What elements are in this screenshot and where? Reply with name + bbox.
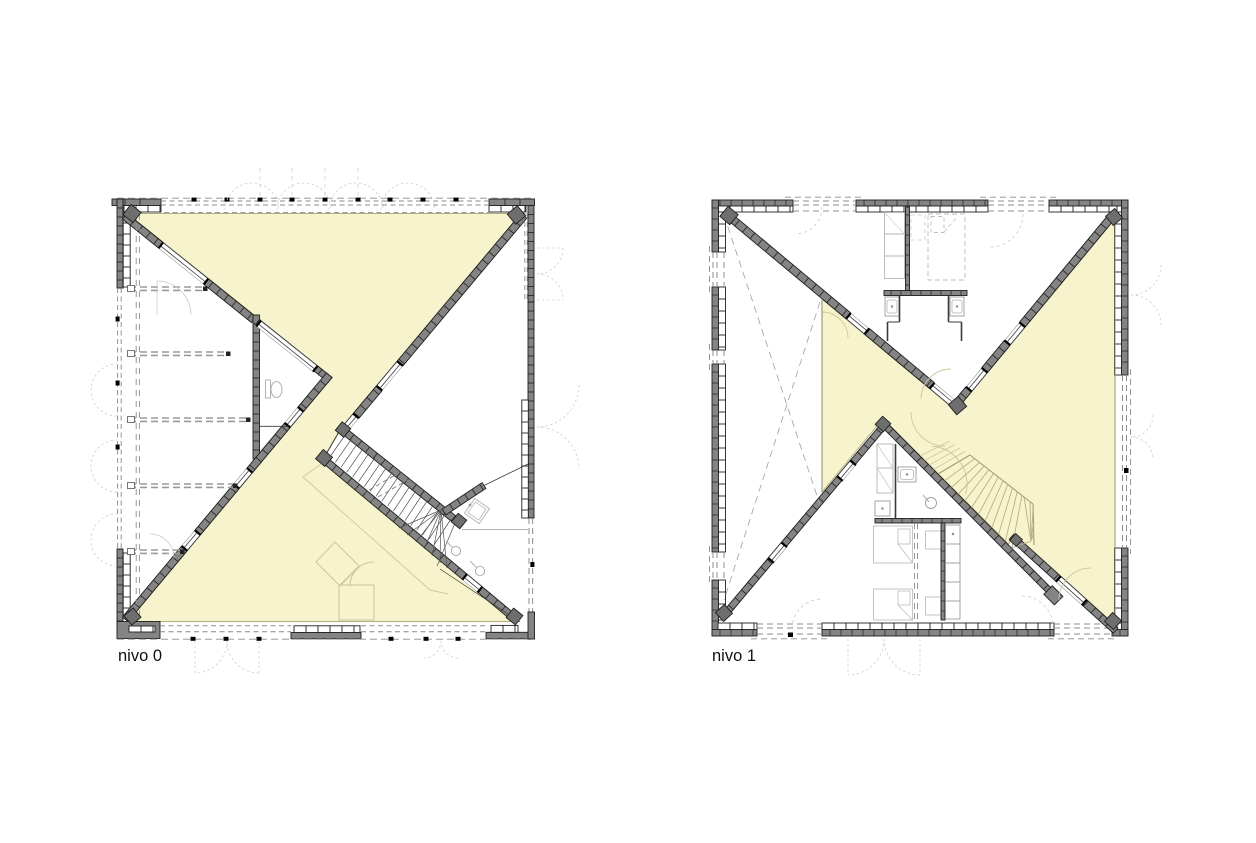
svg-text:nivo 0: nivo 0 [118,647,162,665]
svg-text:nivo 1: nivo 1 [712,647,756,665]
